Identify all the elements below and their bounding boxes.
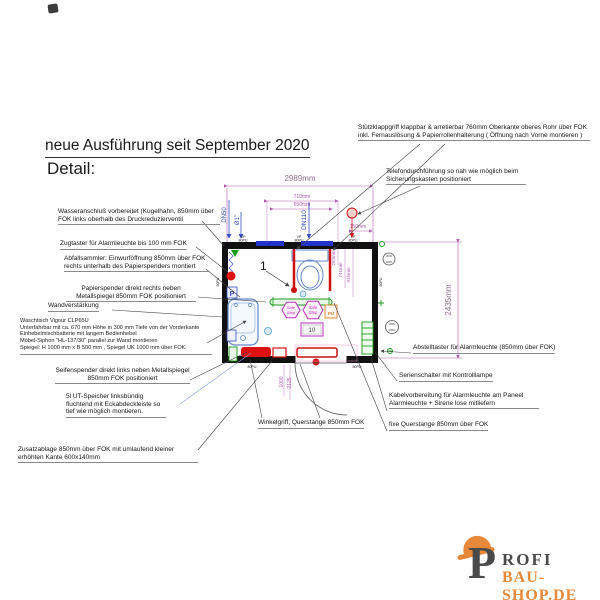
- annotation-stuetzklappgriff: Stützklappgriff klappbar & arretierbar 7…: [358, 124, 590, 141]
- wc-toilet: [292, 250, 328, 290]
- svg-text:PU: PU: [328, 311, 334, 316]
- logo-name: ROFI: [502, 550, 553, 570]
- floor-drain-2: [300, 291, 306, 297]
- dim-total-height: 2435mm: [444, 284, 453, 315]
- svg-text:80PU: 80PU: [295, 239, 304, 243]
- annotation-seifenspender: Seifenspender direkt links neben Metalls…: [55, 367, 190, 384]
- water-connection-marker: [231, 250, 239, 257]
- annotation-winkelgriff: Winkelgriff, Querstange 850mm FOK: [258, 419, 364, 429]
- waschtisch-line-1: Waschtisch Vigour CLP65U: [20, 318, 212, 325]
- position-box: 10: [301, 323, 323, 336]
- pipe-dn50-label: DN50: [222, 207, 228, 223]
- door: [295, 356, 347, 415]
- svg-text:80PU: 80PU: [239, 239, 248, 243]
- soap-dispenser: [241, 347, 271, 357]
- svg-text:80PU: 80PU: [349, 239, 358, 243]
- item-leader: [266, 271, 289, 286]
- dimension-lines: [227, 186, 462, 400]
- cross-bar: [270, 297, 332, 307]
- drawing-page: neue Ausführung seit September 2020 Deta…: [0, 0, 600, 600]
- svg-text:80PU: 80PU: [379, 277, 383, 286]
- safestep-stamp-2: Safe Step: [303, 301, 323, 318]
- dim-wc-outer: 710mm: [294, 194, 311, 200]
- pipe-inch-label: Ø1": [235, 215, 241, 225]
- shelf-box: [273, 348, 286, 357]
- socket-symbol-1: [383, 253, 395, 265]
- waschtisch-line-5: Spiegel: H 1000 mm x B 500 mm , Spiegel …: [20, 345, 212, 352]
- annotation-serienschalter: Serienschalter mit Kontrolllampe: [399, 372, 493, 382]
- socket-symbol-2: [386, 321, 399, 334]
- annotation-papierspender: Papierspender direkt rechts neben Metall…: [66, 285, 196, 302]
- dim-depth-1: 293mm: [331, 250, 336, 265]
- annotation-wandverstaerkung: Wandverstärkung: [48, 302, 99, 312]
- item-number: 1: [260, 259, 267, 273]
- pipe-dn110-label: DN110: [301, 210, 308, 230]
- site-logo: P ROFI BAU-SHOP.DE: [448, 538, 598, 596]
- annotation-telefondurchfuehrung: Telefondurchführung so nah wie möglich b…: [386, 168, 526, 185]
- floor-drain-1: [265, 328, 272, 335]
- svg-text:Step: Step: [287, 310, 296, 315]
- support-rails: [294, 249, 330, 291]
- pu-stamp: PU: [325, 305, 337, 318]
- dim-depth-2: 741mm: [338, 262, 343, 277]
- safestep-stamp-1: Safe Step: [282, 302, 300, 318]
- annotation-zugtaster: Zugtaster für Alarmleuchte bis 100 mm FO…: [60, 240, 187, 250]
- waschtisch-line-3: Einhebelmischbatterie mit langem Bedienh…: [20, 331, 212, 338]
- annotation-kabelvorbereitung: Kabelvorbereitung für Alarmleuchte am Pa…: [389, 392, 539, 409]
- annotation-abfallsammler: Abfallsammler: Einwurföffnung 850mm über…: [64, 255, 209, 272]
- annotation-zusatzablage: Zusatzablage 850mm über FOK mit umlaufen…: [18, 446, 198, 463]
- annotation-abstelltaster: Abstelltaster für Alarmleuchte (850mm üb…: [413, 344, 555, 354]
- dim-total-width: 2989mm: [284, 174, 315, 183]
- annotation-ut-speicher: 5l UT-Speicher linksbündig fluchtend mit…: [66, 393, 166, 418]
- svg-text:Step: Step: [309, 310, 318, 315]
- dim-door-height: 2125: [287, 377, 293, 388]
- waschtisch-line-4: Möbel-Siphon "HL-137/30" parallel zur Wa…: [20, 338, 212, 345]
- fuse-panel: [362, 322, 373, 354]
- annotation-fixe-querstange: fixe Querstange 850mm über FOK: [389, 421, 488, 431]
- dim-wc-inner: 550mm: [294, 202, 311, 208]
- annotation-wasseranschluss: Wasseranschluß vorbereitet (Kugelhahn, 8…: [58, 208, 220, 225]
- svg-text:10: 10: [309, 328, 316, 334]
- dim-depth-3: 915mm: [346, 267, 351, 282]
- annotation-waschtisch-block: Waschtisch Vigour CLP65U Unterfahrbar mi…: [20, 318, 212, 355]
- wall-marker-box: [227, 330, 236, 341]
- waschtisch-line-2: Unterfahrbar mit ca. 670 mm Höhe in 300 …: [20, 325, 212, 332]
- telefon-marker: [347, 208, 357, 237]
- rail-foot-marker: [291, 287, 297, 293]
- alarm-pull-button: [227, 272, 236, 281]
- p-marker: P: [227, 287, 237, 298]
- logo-initial: P: [468, 540, 496, 586]
- dim-door-width: 1000: [279, 376, 285, 387]
- logo-domain: BAU-SHOP.DE: [502, 569, 598, 600]
